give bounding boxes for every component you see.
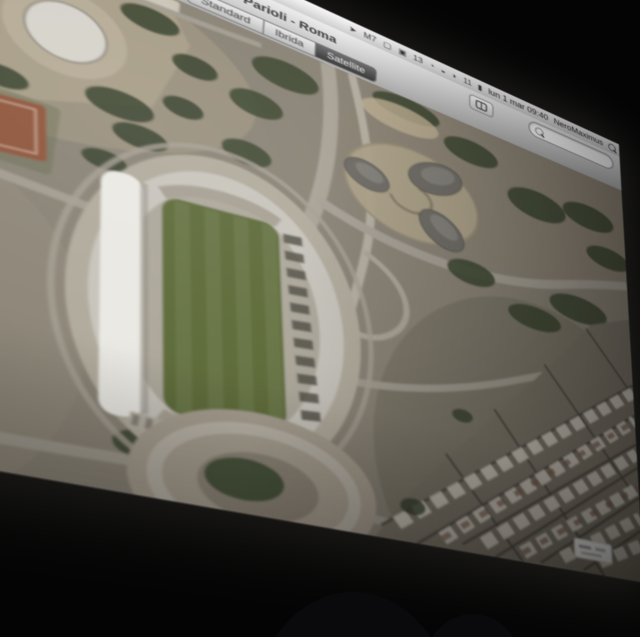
input-menu-icon[interactable]: 13 <box>413 53 423 65</box>
airport-icon[interactable]: ◒ <box>441 65 446 75</box>
volume-icon[interactable]: ◗ <box>452 71 457 81</box>
stadium-roof <box>98 167 143 419</box>
cpu-meter-label: 11 <box>463 76 471 87</box>
cursor-arrow-icon[interactable]: ➤ <box>349 24 357 36</box>
time-machine-icon[interactable]: ◔ <box>429 60 434 70</box>
spotlight-icon[interactable] <box>608 142 616 153</box>
battery-icon[interactable]: ▮ <box>478 82 482 92</box>
bookmarks-icon <box>475 99 487 114</box>
spaces-icon[interactable]: ▣ <box>398 46 407 58</box>
display-icon[interactable]: ▢ <box>383 39 392 51</box>
projection-photo: e Composizione Vista Finestra Aiuto ➤ M7… <box>0 0 640 637</box>
search-icon <box>535 126 544 137</box>
